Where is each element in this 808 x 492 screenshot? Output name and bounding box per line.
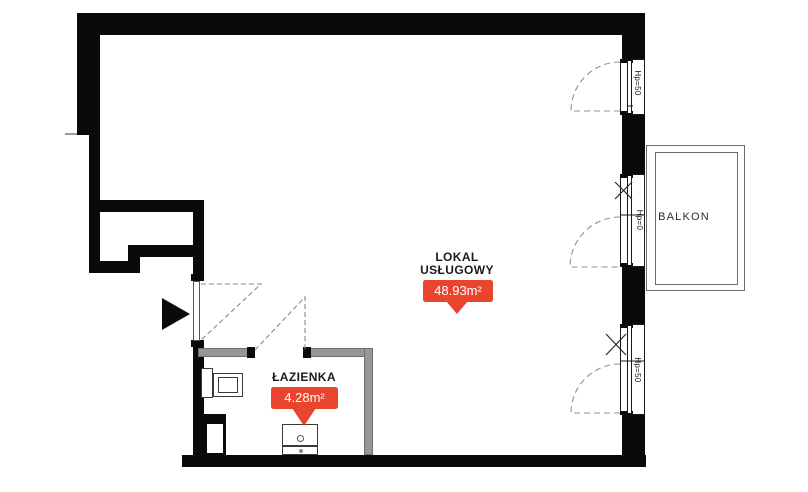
window-bottom-arc [571,364,620,413]
shaft-stub [204,414,226,421]
main-room-label-line2: USŁUGOWY [397,264,517,277]
window-label-hp50-top: Hp=50 [632,53,642,113]
wall-top [77,13,645,35]
partition-bathroom-right [364,348,373,455]
wall-niche-top [89,200,204,212]
window-label-hp50-bottom: Hp=50 [632,340,642,400]
sink-cabinet [282,424,318,455]
main-room-area-badge: 48.93m² [423,280,493,302]
partition-bathroom-top-left [198,348,249,357]
entrance-jamb-top [191,274,204,281]
entrance-door-leaf [193,281,200,341]
sink-drain-icon [297,435,304,442]
bathroom-badge-tail [292,408,316,426]
entrance-swing [200,284,261,341]
window-top-arc [571,62,620,111]
wall-bottom [182,455,646,467]
wall-niche-bottom [89,261,140,273]
washer-box-inner [218,377,238,393]
main-room-badge-tail [446,301,468,314]
window-label-hp0: Hp=0 [634,190,644,250]
entrance-jamb-bottom [191,340,204,347]
bathroom-label: ŁAZIENKA [254,371,354,384]
wall-bathroom-left [193,347,204,467]
bathroom-door-cap-right [303,347,311,358]
toilet-cistern [201,368,213,398]
floor-plan: BALKON Hp=50 Hp=0 Hp=50 [0,0,808,492]
sink-divider [283,445,317,447]
bathroom-door-cap-left [247,347,255,358]
wall-right-seg3 [622,267,645,325]
bathroom-area-badge: 4.28m² [271,387,338,409]
window-glass [627,176,632,265]
entrance-arrow-icon [162,298,190,330]
balcony-label: BALKON [646,211,722,223]
wall-above-entrance [193,200,204,274]
sink-knob-icon [299,449,303,453]
wall-left-thick [77,13,100,135]
balcony-door-arc [570,217,620,267]
wall-right-seg4 [622,415,645,467]
duct-shaft [204,421,226,456]
wall-right-seg2 [622,115,645,175]
main-room-label: LOKAL USŁUGOWY [397,251,517,277]
bathroom-swing [255,297,305,350]
